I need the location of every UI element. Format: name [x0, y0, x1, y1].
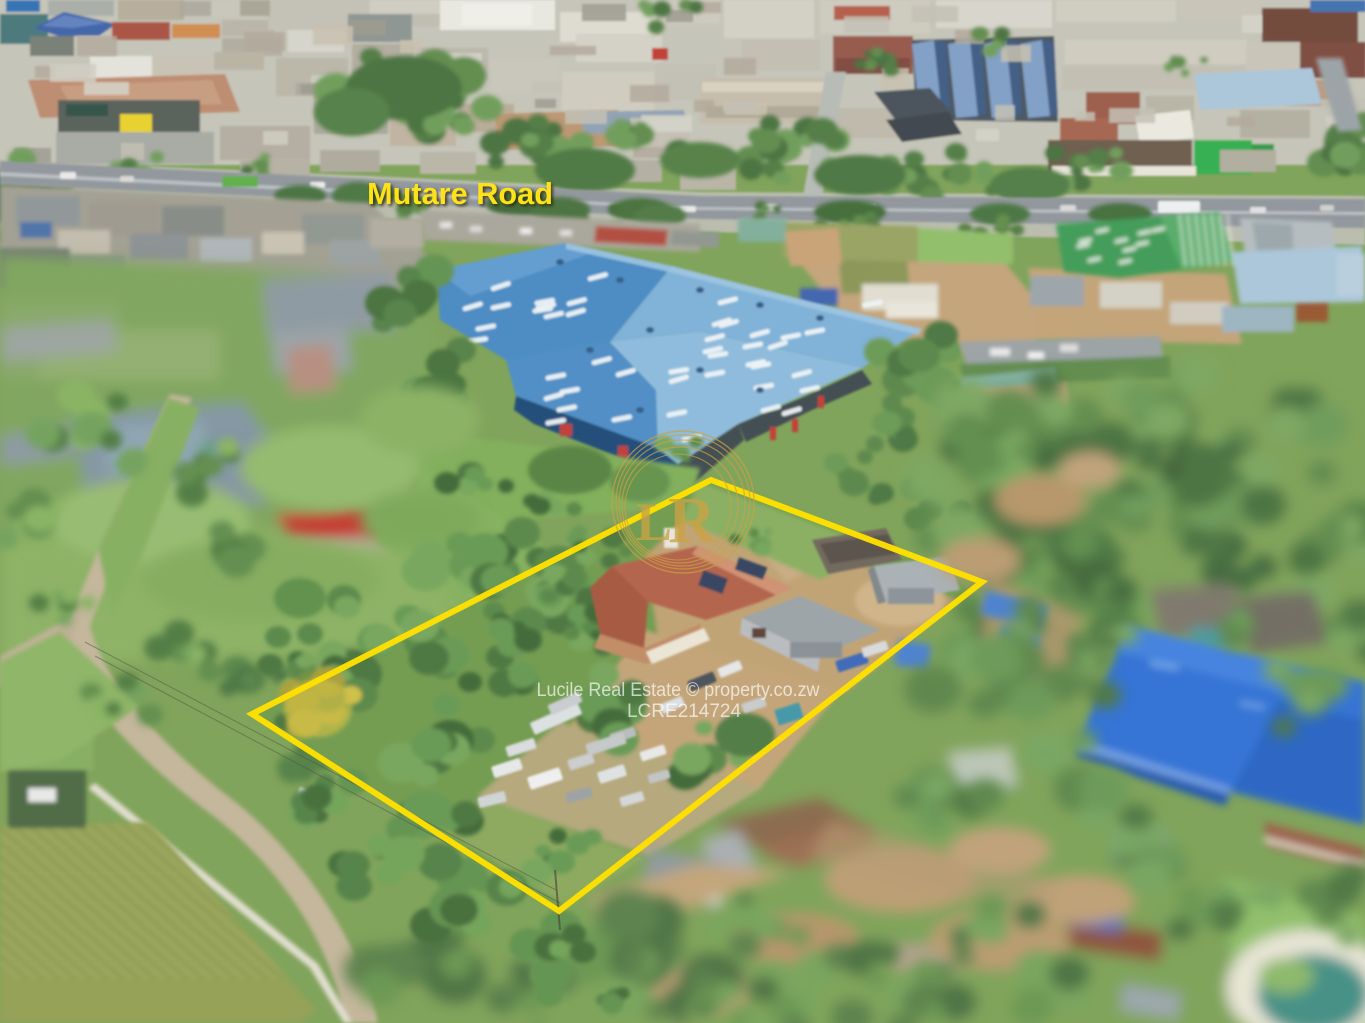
svg-text:R: R [668, 484, 717, 557]
svg-text:L: L [636, 492, 672, 552]
svg-text:Lucile Real Estate © property.: Lucile Real Estate © property.co.zw [537, 680, 820, 701]
svg-text:Mutare Road: Mutare Road [367, 177, 553, 211]
svg-text:LCRE214724: LCRE214724 [627, 701, 742, 722]
